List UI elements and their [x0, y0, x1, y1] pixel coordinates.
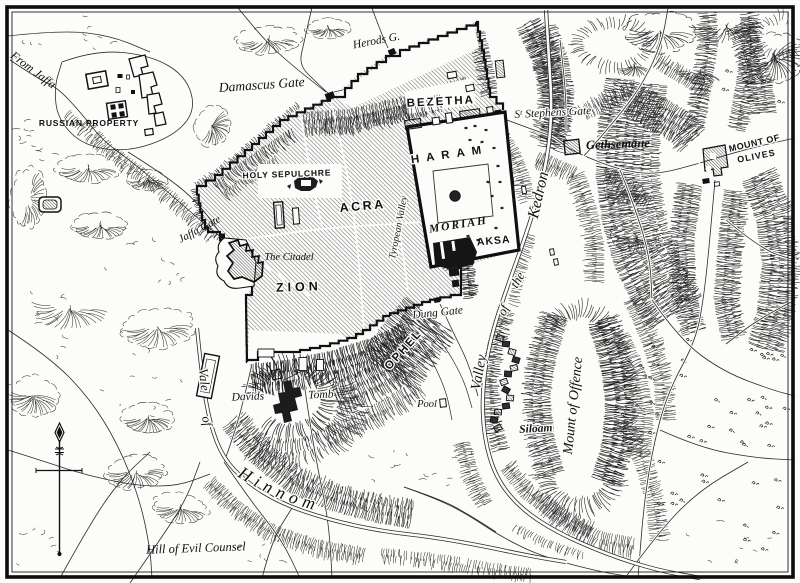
svg-text:Davids: Davids [230, 390, 265, 403]
svg-text:Gethsemane: Gethsemane [586, 136, 651, 152]
svg-text:Tomb: Tomb [308, 389, 334, 402]
svg-text:The Citadel: The Citadel [264, 252, 313, 263]
svg-text:ZION: ZION [276, 279, 322, 295]
svg-text:Pool: Pool [416, 399, 437, 410]
svg-text:Vale: Vale [196, 368, 213, 392]
svg-text:Siloam: Siloam [519, 422, 553, 436]
svg-text:RUSSIAN PROPERTY: RUSSIAN PROPERTY [39, 118, 139, 128]
